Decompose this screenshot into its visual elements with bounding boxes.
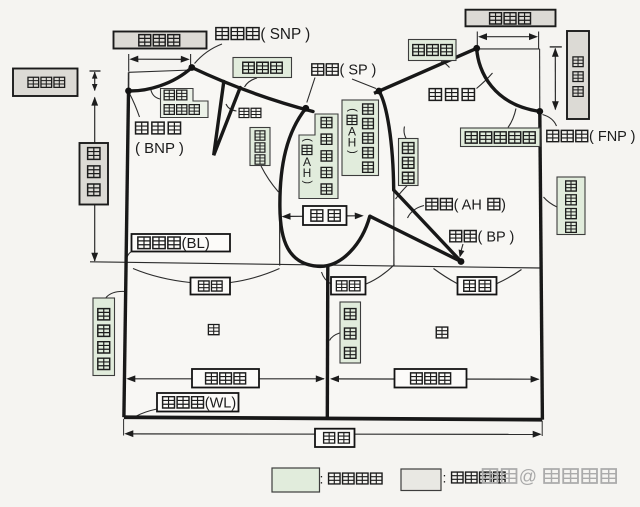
svg-text:( FNP ): ( FNP ) bbox=[589, 129, 635, 145]
svg-text:(: ( bbox=[302, 138, 314, 142]
svg-text:( AH: ( AH bbox=[454, 197, 482, 213]
svg-text:( BNP ): ( BNP ) bbox=[135, 140, 184, 157]
svg-text:(: ( bbox=[347, 108, 359, 112]
svg-text:): ) bbox=[501, 197, 506, 213]
svg-text:(WL): (WL) bbox=[205, 396, 236, 412]
svg-text:H: H bbox=[348, 136, 357, 150]
svg-text:( SP ): ( SP ) bbox=[340, 63, 377, 79]
svg-text:): ) bbox=[347, 150, 359, 154]
svg-text:H: H bbox=[303, 166, 312, 180]
svg-text::: : bbox=[443, 469, 447, 485]
svg-text:@: @ bbox=[519, 466, 537, 486]
svg-text:( SNP ): ( SNP ) bbox=[260, 26, 310, 43]
svg-text:( BP ): ( BP ) bbox=[478, 229, 515, 245]
svg-text::: : bbox=[320, 470, 324, 486]
svg-text:): ) bbox=[302, 180, 314, 184]
svg-text:(BL): (BL) bbox=[182, 235, 210, 252]
